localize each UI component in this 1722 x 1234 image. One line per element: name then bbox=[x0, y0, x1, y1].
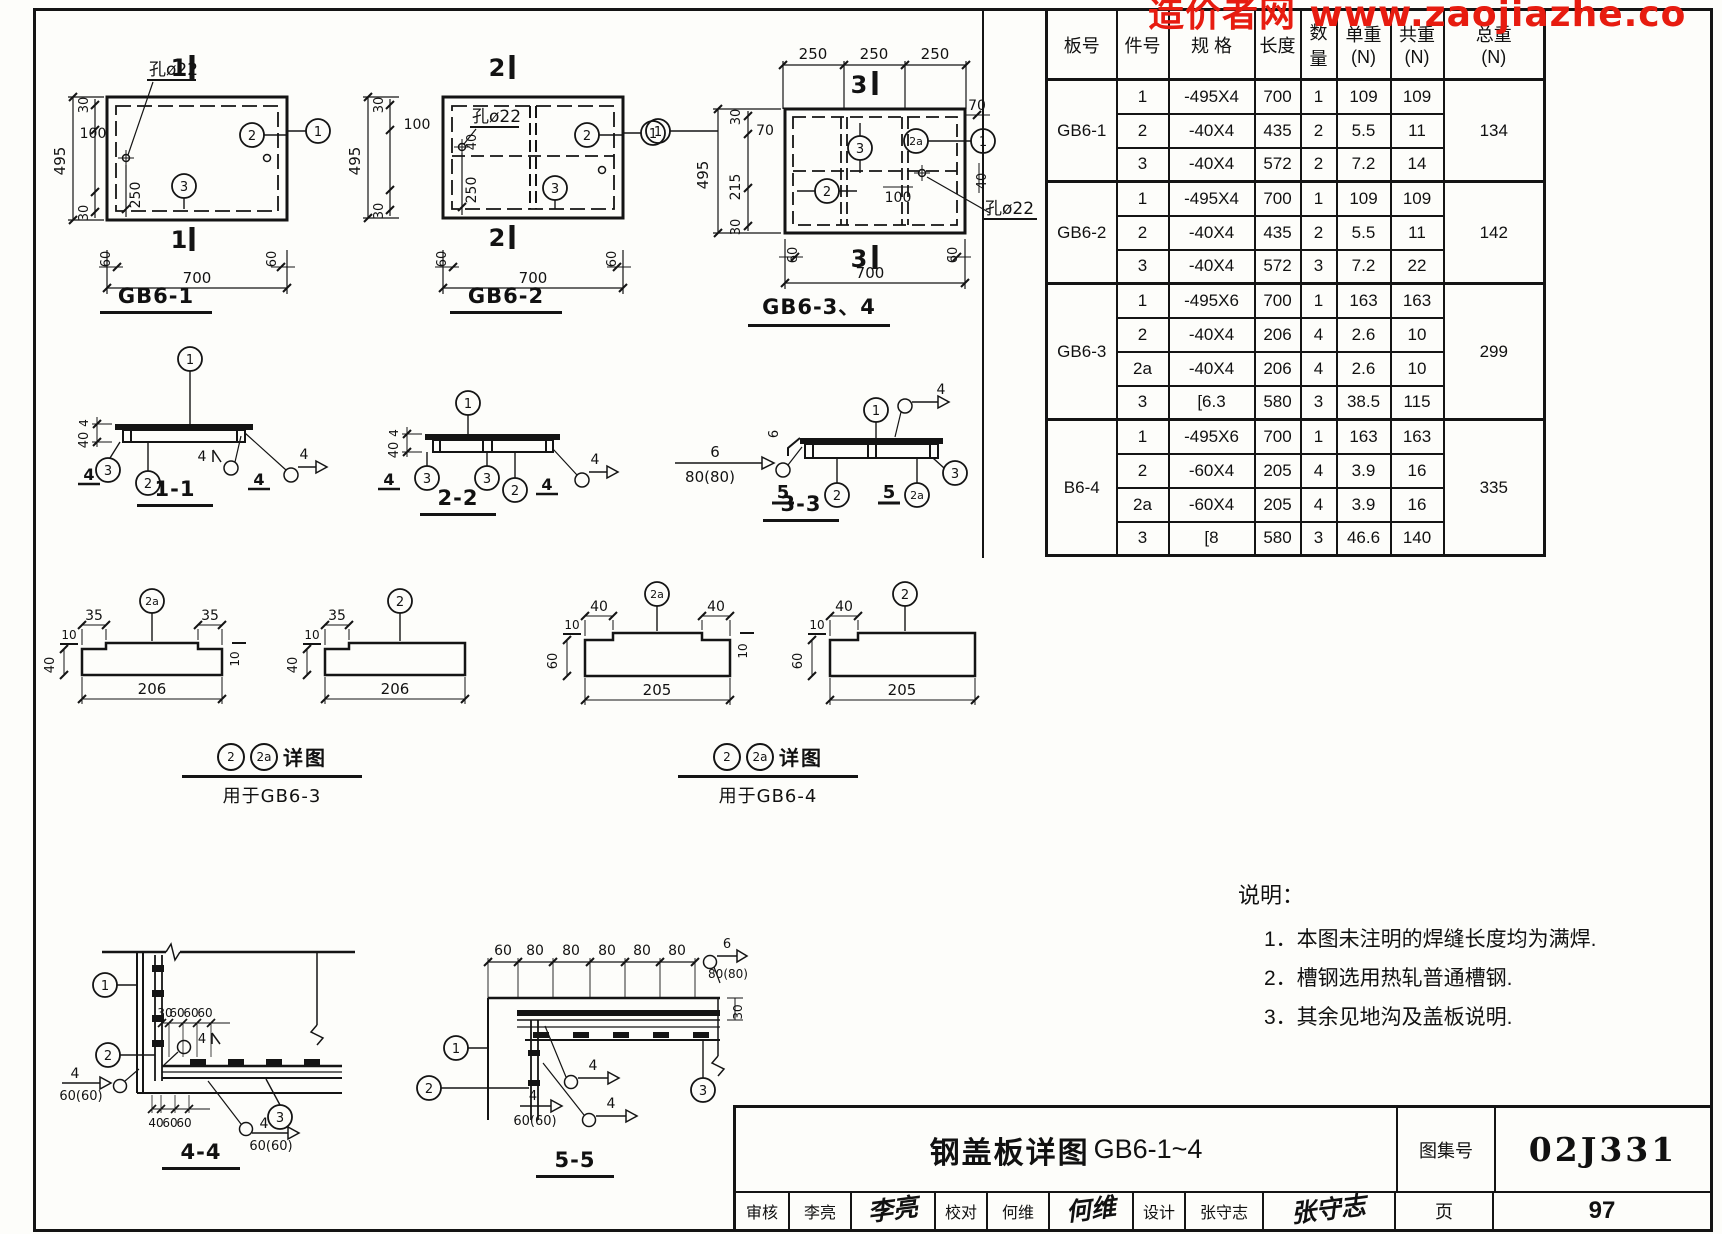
title-block-sign-row: 审核 李亮 李亮 校对 何维 何维 设计 张守志 张守志 页 97 bbox=[736, 1193, 1710, 1229]
table-cell: 1 bbox=[1117, 284, 1169, 318]
table-cell: 700 bbox=[1255, 182, 1301, 216]
weld-size: 6 bbox=[723, 937, 731, 952]
table-cell: 3 bbox=[1117, 522, 1169, 556]
section-mark-3-top: 3 bbox=[851, 71, 868, 99]
table-cell: 206 bbox=[1255, 352, 1301, 386]
callout-3: 3 bbox=[699, 1084, 707, 1099]
table-cell: 1 bbox=[1301, 182, 1337, 216]
dim-label: 40 bbox=[43, 657, 58, 674]
dim-label: 40 bbox=[835, 599, 853, 615]
table-cell: 2.6 bbox=[1337, 318, 1391, 352]
table-cell: 109 bbox=[1391, 80, 1444, 114]
section-11-title: 1-1 bbox=[137, 477, 213, 507]
dim-label: 40 bbox=[148, 1116, 163, 1130]
table-cell: 700 bbox=[1255, 420, 1301, 454]
weld-ref: 4 bbox=[198, 449, 207, 465]
plate-cell: B6-4 bbox=[1047, 420, 1117, 556]
dim-label: 205 bbox=[888, 681, 917, 699]
callout-2a: 2a bbox=[145, 595, 159, 608]
callout-3: 3 bbox=[856, 142, 864, 157]
weld-length: 80(80) bbox=[708, 967, 748, 981]
callout-2a: 2a bbox=[910, 489, 924, 502]
plan-gb61: 1 1 495 30 100 250 30 孔ø22 60 60 700 2 1… bbox=[55, 45, 355, 303]
plan-gb634: 250 250 250 3 3 495 30 70 215 30 1 3 2a … bbox=[645, 15, 1045, 315]
table-row: GB6-3 1 -495X6 700 1 163 163 299 bbox=[1047, 284, 1545, 318]
dim-label: 10 bbox=[809, 618, 824, 632]
table-cell: 1 bbox=[1301, 420, 1337, 454]
callout-1: 1 bbox=[464, 397, 472, 412]
sheet-title-cn: 钢盖板详图 bbox=[930, 1128, 1090, 1172]
total-cell: 299 bbox=[1444, 284, 1545, 420]
weld-length: 60(60) bbox=[249, 1139, 292, 1154]
table-cell: 5.5 bbox=[1337, 114, 1391, 148]
table-cell: 205 bbox=[1255, 488, 1301, 522]
dim-label: 40 bbox=[707, 599, 725, 615]
dim-label: 205 bbox=[643, 681, 672, 699]
design-label: 设计 bbox=[1132, 1193, 1184, 1229]
corner-55-title: 5-5 bbox=[536, 1148, 614, 1178]
section-11-linework bbox=[78, 347, 327, 495]
table-cell: [8 bbox=[1169, 522, 1255, 556]
table-cell: 22 bbox=[1391, 250, 1444, 284]
table-cell: 7.2 bbox=[1337, 250, 1391, 284]
notes-heading: 说明： bbox=[1238, 878, 1658, 910]
detail-title-row: 2 2a 详图 bbox=[182, 742, 362, 778]
dim-label: 60 bbox=[265, 251, 280, 268]
dim-label: 60 bbox=[197, 1006, 212, 1020]
callout-1: 1 bbox=[314, 125, 322, 140]
detail-title-text: 详图 bbox=[779, 742, 823, 771]
table-cell: -495X4 bbox=[1169, 80, 1255, 114]
table-cell: 2a bbox=[1117, 488, 1169, 522]
dim-label: 30 bbox=[372, 203, 387, 220]
corner-44-linework bbox=[62, 944, 355, 1139]
weld-ref: 4 bbox=[383, 470, 394, 489]
table-cell: 163 bbox=[1337, 284, 1391, 318]
table-cell: 4 bbox=[1301, 488, 1337, 522]
hole-label: 孔ø22 bbox=[149, 60, 198, 80]
weld-ref: 4 bbox=[260, 1116, 269, 1132]
dim-label: 10 bbox=[61, 628, 76, 642]
table-cell: 115 bbox=[1391, 386, 1444, 420]
dim-label: 30 bbox=[372, 97, 387, 114]
dim-label: 60 bbox=[169, 1006, 184, 1020]
dim-label: 215 bbox=[728, 174, 744, 201]
check-name: 何维 bbox=[986, 1193, 1048, 1229]
dim-label: 40 bbox=[77, 432, 92, 449]
callout-2: 2 bbox=[217, 743, 245, 771]
table-cell: 2 bbox=[1117, 114, 1169, 148]
frame-right bbox=[1710, 8, 1713, 1232]
title-block-main-row: 钢盖板详图 GB6-1~4 图集号 02J331 bbox=[736, 1108, 1710, 1193]
table-cell: 3.9 bbox=[1337, 488, 1391, 522]
table-cell: 2a bbox=[1117, 352, 1169, 386]
table-cell: 1 bbox=[1301, 284, 1337, 318]
total-cell: 142 bbox=[1444, 182, 1545, 284]
dim-label: 60 bbox=[786, 247, 801, 264]
dim-label: 30 bbox=[731, 1004, 745, 1019]
table-cell: -40X4 bbox=[1169, 318, 1255, 352]
section-mark-1-bottom: 1 bbox=[171, 226, 188, 254]
plate-cell: GB6-1 bbox=[1047, 80, 1117, 182]
callout-1: 1 bbox=[101, 979, 109, 994]
table-cell: 109 bbox=[1337, 80, 1391, 114]
table-cell: 3.9 bbox=[1337, 454, 1391, 488]
corner-55-linework bbox=[417, 950, 747, 1127]
dim-label: 35 bbox=[328, 608, 346, 624]
weld-length: 60(60) bbox=[513, 1114, 556, 1129]
review-name: 李亮 bbox=[788, 1193, 850, 1229]
dim-label: 40 bbox=[387, 442, 402, 459]
callout-3: 3 bbox=[551, 182, 559, 197]
callout-2a: 2a bbox=[650, 588, 664, 601]
total-cell: 134 bbox=[1444, 80, 1545, 182]
table-cell: 3 bbox=[1117, 148, 1169, 182]
table-row: GB6-1 1 -495X4 700 1 109 109 134 bbox=[1047, 80, 1545, 114]
table-cell: 163 bbox=[1337, 420, 1391, 454]
dim-label: 70 bbox=[968, 98, 986, 114]
dim-label: 60 bbox=[183, 1006, 198, 1020]
callout-2a: 2a bbox=[250, 743, 278, 771]
weld-ref: 4 bbox=[300, 447, 309, 463]
corner-44-title: 4-4 bbox=[162, 1140, 240, 1170]
table-cell: -60X4 bbox=[1169, 488, 1255, 522]
section-mark-2-bottom: 2 bbox=[489, 224, 506, 252]
section-33-title: 3-3 bbox=[763, 492, 839, 522]
notes: 说明： 1．本图未注明的焊缝长度均为满焊. 2．槽钢选用热轧普通槽钢. 3．其余… bbox=[1238, 878, 1658, 1037]
callout-2: 2 bbox=[511, 484, 519, 499]
callout-2a: 2a bbox=[909, 135, 923, 148]
callout-2: 2 bbox=[583, 129, 591, 144]
table-cell: 1 bbox=[1301, 80, 1337, 114]
table-row: GB6-2 1 -495X4 700 1 109 109 142 bbox=[1047, 182, 1545, 216]
weld-ref: 4 bbox=[589, 1058, 598, 1074]
detail-title-gb64: 2 2a 详图 用于GB6-4 bbox=[678, 742, 858, 808]
callout-3: 3 bbox=[951, 467, 959, 482]
dim-label: 60 bbox=[546, 653, 561, 670]
drawing-sheet: 造价者网 www.zaojiazhe.co bbox=[0, 0, 1722, 1234]
callout-1: 1 bbox=[979, 135, 987, 150]
table-cell: 2 bbox=[1301, 114, 1337, 148]
dim-label: 250 bbox=[128, 182, 144, 209]
table-cell: 4 bbox=[1301, 454, 1337, 488]
weld-ref: 4 bbox=[253, 470, 264, 489]
table-cell: 1 bbox=[1117, 80, 1169, 114]
callout-1: 1 bbox=[186, 353, 194, 368]
callout-2: 2 bbox=[713, 743, 741, 771]
weld-ref: 4 bbox=[198, 1032, 206, 1047]
dim-label: 30 bbox=[729, 109, 744, 126]
hole-label: 孔ø22 bbox=[472, 107, 521, 127]
callout-3: 3 bbox=[483, 472, 491, 487]
dim-label: 30 bbox=[77, 97, 92, 114]
dim-label: 4 bbox=[387, 429, 401, 437]
dim-label: 60 bbox=[494, 943, 512, 959]
dim-label: 206 bbox=[381, 680, 410, 698]
plan-gb61-title: GB6-1 bbox=[100, 284, 212, 314]
detail-title-row: 2 2a 详图 bbox=[678, 742, 858, 778]
plan-gb62-title: GB6-2 bbox=[450, 284, 562, 314]
dim-label: 6 bbox=[767, 430, 782, 438]
dim-label: 30 bbox=[729, 219, 744, 236]
callout-3: 3 bbox=[276, 1111, 284, 1126]
table-cell: 3 bbox=[1117, 250, 1169, 284]
detail-plate-2-gb64: 40 10 60 205 2 bbox=[790, 578, 1030, 733]
callout-3: 3 bbox=[423, 472, 431, 487]
section-22-title: 2-2 bbox=[420, 486, 496, 516]
hole-label: 孔ø22 bbox=[985, 199, 1034, 219]
parts-table: 板号 件号 规 格 长度 数量 单重(N) 共重(N) 总重(N) GB6-1 … bbox=[1045, 8, 1546, 557]
table-cell: 3 bbox=[1117, 386, 1169, 420]
weld-ref: 4 bbox=[529, 1089, 537, 1104]
sheet-title: 钢盖板详图 GB6-1~4 bbox=[736, 1108, 1396, 1191]
detail-plate-2-gb63: 35 10 40 206 2 bbox=[285, 583, 515, 728]
note-item: 1．本图未注明的焊缝长度均为满焊. bbox=[1264, 920, 1658, 959]
table-cell: 572 bbox=[1255, 148, 1301, 182]
weld-size: 6 bbox=[710, 443, 720, 461]
table-cell: -40X4 bbox=[1169, 250, 1255, 284]
design-signature: 张守志 bbox=[1262, 1193, 1394, 1229]
table-cell: 4 bbox=[1301, 318, 1337, 352]
callout-2: 2 bbox=[823, 185, 831, 200]
weld-length: 80(80) bbox=[685, 468, 735, 486]
table-cell: 109 bbox=[1391, 182, 1444, 216]
table-cell: 572 bbox=[1255, 250, 1301, 284]
dim-label: 100 bbox=[404, 117, 431, 133]
check-signature: 何维 bbox=[1048, 1193, 1132, 1229]
dim-label: 80 bbox=[598, 943, 616, 959]
dim-label: 60 bbox=[99, 251, 114, 268]
dim-label: 250 bbox=[464, 177, 480, 204]
table-cell: -40X4 bbox=[1169, 352, 1255, 386]
dim-label: 250 bbox=[921, 45, 950, 63]
dim-label: 80 bbox=[526, 943, 544, 959]
callout-3: 3 bbox=[104, 464, 112, 479]
plate-cell: GB6-2 bbox=[1047, 182, 1117, 284]
plan-gb62: 2 2 495 30 100 40 250 30 孔ø22 60 60 700 … bbox=[345, 45, 675, 303]
weld-ref: 4 bbox=[937, 382, 946, 398]
callout-2: 2 bbox=[248, 129, 256, 144]
table-cell: 11 bbox=[1391, 216, 1444, 250]
page-label: 页 bbox=[1394, 1193, 1492, 1229]
dim-label: 60 bbox=[946, 247, 961, 264]
section-mark-2-top: 2 bbox=[489, 54, 506, 82]
dim-label: 60 bbox=[176, 1116, 191, 1130]
table-cell: 700 bbox=[1255, 284, 1301, 318]
callout-2a: 2a bbox=[746, 743, 774, 771]
weld-length: 60(60) bbox=[59, 1089, 102, 1104]
callout-2: 2 bbox=[104, 1049, 112, 1064]
table-cell: -40X4 bbox=[1169, 216, 1255, 250]
table-cell: 2.6 bbox=[1337, 352, 1391, 386]
dim-label: 40 bbox=[286, 657, 301, 674]
dim-label: 700 bbox=[856, 264, 885, 282]
dim-label: 10 bbox=[228, 651, 242, 666]
dim-label: 80 bbox=[562, 943, 580, 959]
detail-title-sub: 用于GB6-3 bbox=[182, 782, 362, 808]
weld-ref: 4 bbox=[607, 1096, 616, 1112]
dim-label: 60 bbox=[162, 1116, 177, 1130]
table-cell: 3 bbox=[1301, 522, 1337, 556]
table-cell: 580 bbox=[1255, 386, 1301, 420]
dim-label: 80 bbox=[633, 943, 651, 959]
table-cell: 16 bbox=[1391, 488, 1444, 522]
section-ref-5: 5 bbox=[883, 482, 896, 503]
table-cell: 2 bbox=[1117, 454, 1169, 488]
design-name: 张守志 bbox=[1184, 1193, 1262, 1229]
table-cell: -495X6 bbox=[1169, 420, 1255, 454]
table-cell: 205 bbox=[1255, 454, 1301, 488]
table-cell: 2 bbox=[1301, 148, 1337, 182]
page-number: 97 bbox=[1492, 1193, 1710, 1229]
table-cell: [6.3 bbox=[1169, 386, 1255, 420]
table-cell: -495X4 bbox=[1169, 182, 1255, 216]
dim-label: 40 bbox=[465, 134, 480, 151]
callout-1: 1 bbox=[452, 1042, 460, 1057]
weld-ref: 4 bbox=[71, 1066, 80, 1082]
table-cell: 2 bbox=[1301, 216, 1337, 250]
table-cell: 46.6 bbox=[1337, 522, 1391, 556]
watermark: 造价者网 www.zaojiazhe.co bbox=[1148, 0, 1686, 37]
dim-label: 100 bbox=[885, 190, 912, 206]
dim-label: 495 bbox=[346, 147, 364, 176]
dim-label: 80 bbox=[668, 943, 686, 959]
table-cell: 10 bbox=[1391, 352, 1444, 386]
dim-label: 60 bbox=[791, 653, 806, 670]
detail-title-text: 详图 bbox=[283, 742, 327, 771]
callout-1: 1 bbox=[654, 125, 662, 140]
table-cell: 163 bbox=[1391, 420, 1444, 454]
dim-label: 250 bbox=[799, 45, 828, 63]
plan-gb634-title: GB6-3、4 bbox=[748, 291, 890, 327]
note-item: 2．槽钢选用热轧普通槽钢. bbox=[1264, 959, 1658, 998]
table-cell: 11 bbox=[1391, 114, 1444, 148]
detail-plate-2a-gb64: 40 40 10 10 60 205 2a bbox=[545, 578, 785, 733]
weld-ref: 4 bbox=[83, 465, 94, 484]
sheet-title-code: GB6-1~4 bbox=[1094, 1134, 1203, 1165]
total-cell: 335 bbox=[1444, 420, 1545, 556]
table-cell: -60X4 bbox=[1169, 454, 1255, 488]
plate-cell: GB6-3 bbox=[1047, 284, 1117, 420]
dim-label: 10 bbox=[304, 628, 319, 642]
dim-label: 35 bbox=[201, 608, 219, 624]
table-cell: 163 bbox=[1391, 284, 1444, 318]
weld-ref: 4 bbox=[591, 452, 600, 468]
table-cell: 5.5 bbox=[1337, 216, 1391, 250]
weld-ref: 4 bbox=[541, 475, 552, 494]
dim-label: 250 bbox=[860, 45, 889, 63]
table-cell: 16 bbox=[1391, 454, 1444, 488]
table-cell: 38.5 bbox=[1337, 386, 1391, 420]
table-cell: 1 bbox=[1117, 420, 1169, 454]
table-cell: 3 bbox=[1301, 250, 1337, 284]
callout-3: 3 bbox=[180, 180, 188, 195]
atlas-no-value: 02J331 bbox=[1494, 1108, 1710, 1191]
callout-2: 2 bbox=[396, 595, 404, 610]
col-header: 板号 bbox=[1047, 10, 1117, 80]
title-block: 钢盖板详图 GB6-1~4 图集号 02J331 审核 李亮 李亮 校对 何维 … bbox=[733, 1105, 1713, 1232]
dim-label: 70 bbox=[756, 123, 774, 139]
dim-label: 100 bbox=[80, 126, 107, 142]
table-cell: 140 bbox=[1391, 522, 1444, 556]
table-cell: 206 bbox=[1255, 318, 1301, 352]
review-label: 审核 bbox=[736, 1193, 788, 1229]
table-cell: 10 bbox=[1391, 318, 1444, 352]
check-label: 校对 bbox=[934, 1193, 986, 1229]
dim-label: 60 bbox=[605, 251, 620, 268]
dim-label: 10 bbox=[736, 643, 750, 658]
dim-label: 495 bbox=[694, 161, 712, 190]
atlas-no-label: 图集号 bbox=[1396, 1108, 1494, 1191]
dim-label: 40 bbox=[975, 173, 990, 190]
table-row: B6-4 1 -495X6 700 1 163 163 335 bbox=[1047, 420, 1545, 454]
table-cell: 700 bbox=[1255, 80, 1301, 114]
detail-plate-2a-gb63: 35 35 10 10 40 206 2a bbox=[42, 583, 272, 728]
section-22-linework bbox=[378, 391, 618, 502]
table-cell: -40X4 bbox=[1169, 148, 1255, 182]
table-cell: 3 bbox=[1301, 386, 1337, 420]
callout-2: 2 bbox=[425, 1082, 433, 1097]
table-cell: -495X6 bbox=[1169, 284, 1255, 318]
table-cell: 4 bbox=[1301, 352, 1337, 386]
table-cell: 435 bbox=[1255, 216, 1301, 250]
table-cell: 109 bbox=[1337, 182, 1391, 216]
detail-title-sub: 用于GB6-4 bbox=[678, 782, 858, 808]
table-cell: -40X4 bbox=[1169, 114, 1255, 148]
dim-label: 206 bbox=[138, 680, 167, 698]
dim-label: 4 bbox=[77, 419, 91, 427]
table-cell: 1 bbox=[1117, 182, 1169, 216]
dim-label: 35 bbox=[85, 608, 103, 624]
note-item: 3．其余见地沟及盖板说明. bbox=[1264, 998, 1658, 1037]
detail-title-gb63: 2 2a 详图 用于GB6-3 bbox=[182, 742, 362, 808]
table-cell: 2 bbox=[1117, 318, 1169, 352]
dim-label: 495 bbox=[51, 147, 69, 176]
table-cell: 7.2 bbox=[1337, 148, 1391, 182]
frame-left bbox=[33, 8, 36, 1232]
table-cell: 435 bbox=[1255, 114, 1301, 148]
dim-label: 60 bbox=[435, 251, 450, 268]
table-cell: 14 bbox=[1391, 148, 1444, 182]
review-signature: 李亮 bbox=[850, 1193, 934, 1229]
dim-label: 30 bbox=[77, 205, 92, 222]
dim-label: 10 bbox=[564, 618, 579, 632]
callout-2: 2 bbox=[901, 588, 909, 603]
dim-label: 40 bbox=[590, 599, 608, 615]
table-cell: 2 bbox=[1117, 216, 1169, 250]
corner-55: 60 80 80 80 80 80 1 2 3 4 4 4 60(60) 6 8… bbox=[383, 928, 748, 1168]
callout-1: 1 bbox=[872, 404, 880, 419]
table-cell: 580 bbox=[1255, 522, 1301, 556]
